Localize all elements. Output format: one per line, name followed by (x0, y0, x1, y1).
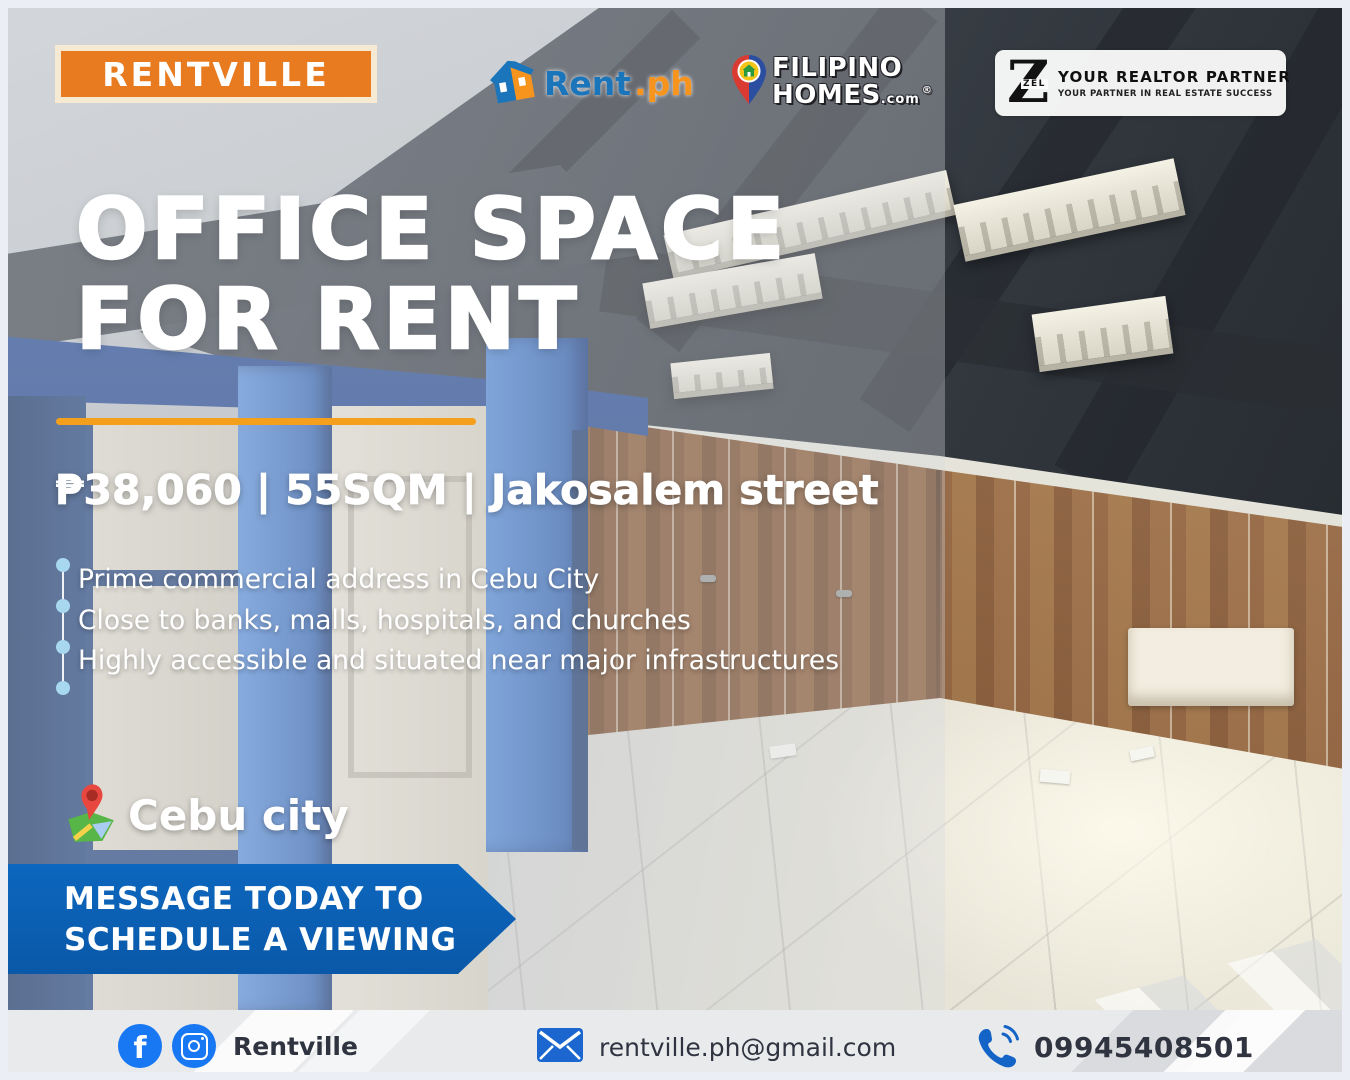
price-line: ₱38,060 | 55SQM | Jakosalem street (55, 466, 879, 514)
phone-label: 09945408501 (1034, 1031, 1254, 1064)
feature-rail-dot (56, 558, 70, 572)
filipinohomes-tld: .com (881, 86, 920, 113)
facebook-icon: f (118, 1024, 162, 1068)
cta-line1: MESSAGE TODAY TO (64, 879, 520, 920)
filipinohomes-pin-icon (731, 53, 767, 111)
rentville-badge: RENTVILLE (55, 45, 377, 103)
location-label: Cebu city (128, 791, 349, 840)
location-row: Cebu city (60, 782, 349, 848)
zel-tagline: YOUR PARTNER IN REAL ESTATE SUCCESS (1058, 89, 1291, 99)
poster-content: RENTVILLE Rent.ph (0, 0, 1350, 1080)
social-handle-label: Rentville (233, 1032, 358, 1061)
feature-item: Highly accessible and situated near majo… (78, 641, 839, 682)
email-icon (537, 1028, 583, 1066)
headline-line1: OFFICE SPACE (76, 184, 788, 274)
cta-line2: SCHEDULE A VIEWING (64, 920, 520, 961)
page-title: OFFICE SPACE FOR RENT (76, 184, 788, 364)
feature-rail-dot (56, 681, 70, 695)
filipinohomes-wordmark: FILIPINO HOMES .com ® (772, 55, 932, 114)
rentph-wordmark-tld: .ph (634, 64, 694, 103)
rentph-logo: Rent.ph (483, 53, 694, 113)
feature-rail (62, 560, 64, 690)
map-pin-icon (60, 782, 118, 848)
instagram-icon (172, 1024, 216, 1068)
cta-banner: MESSAGE TODAY TO SCHEDULE A VIEWING (0, 864, 520, 974)
rentph-house-icon (483, 53, 541, 113)
email-label: rentville.ph@gmail.com (599, 1033, 896, 1062)
rentph-wordmark-name: Rent (544, 64, 631, 103)
registered-mark: ® (922, 77, 933, 104)
zel-monogram: Z ZEL (1007, 54, 1049, 112)
feature-rail-dot (56, 599, 70, 613)
zel-monogram-label: ZEL (1021, 79, 1048, 89)
feature-rail-dot (56, 640, 70, 654)
headline-line2: FOR RENT (76, 274, 788, 364)
orange-divider (56, 418, 476, 425)
zel-realtor-badge: Z ZEL YOUR REALTOR PARTNER YOUR PARTNER … (995, 50, 1286, 116)
feature-item: Close to banks, malls, hospitals, and ch… (78, 601, 839, 642)
filipinohomes-line1: FILIPINO (772, 55, 932, 82)
filipinohomes-line2: HOMES (772, 82, 881, 109)
filipinohomes-logo: FILIPINO HOMES .com ® (731, 53, 932, 114)
zel-title: YOUR REALTOR PARTNER (1058, 68, 1291, 86)
feature-item: Prime commercial address in Cebu City (78, 560, 839, 601)
feature-list: Prime commercial address in Cebu City Cl… (78, 560, 839, 682)
phone-icon (972, 1021, 1022, 1075)
rentville-badge-label: RENTVILLE (102, 55, 330, 94)
